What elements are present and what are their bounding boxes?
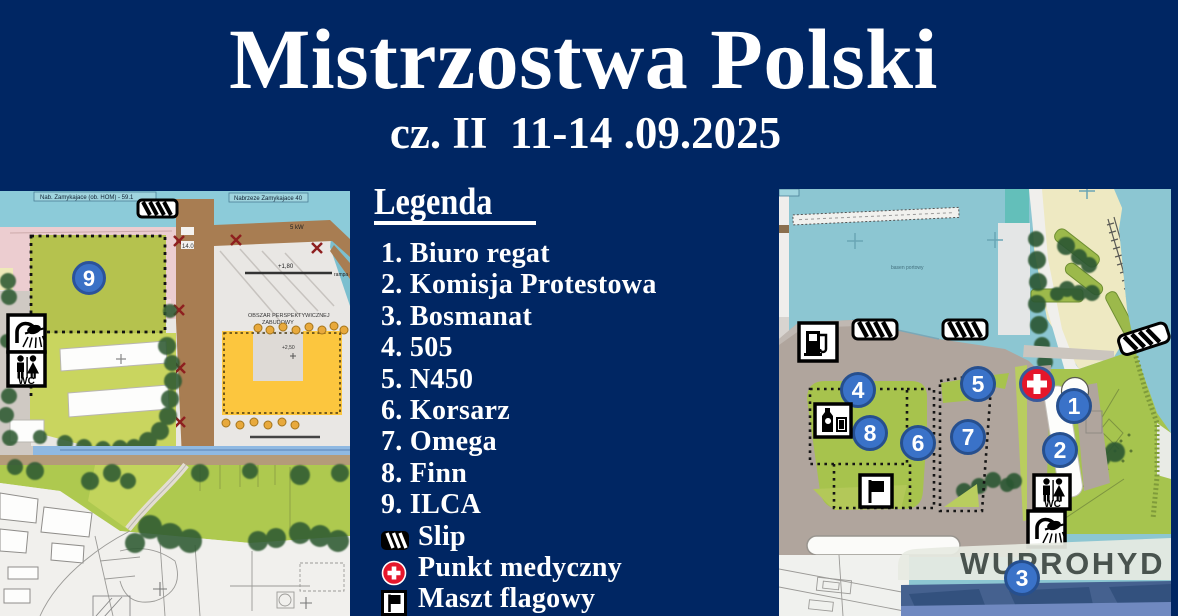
svg-text:+1,80: +1,80 xyxy=(278,264,294,270)
svg-text:Nab. Zamykajace (ob. HOM) - 59: Nab. Zamykajace (ob. HOM) - 59.1 xyxy=(40,195,134,201)
svg-text:7: 7 xyxy=(962,424,975,450)
svg-text:OBSZAR PERSPEKTYWICZNEJ: OBSZAR PERSPEKTYWICZNEJ xyxy=(248,313,330,319)
svg-text:basen portowy: basen portowy xyxy=(891,265,924,271)
svg-text:WC: WC xyxy=(18,376,35,387)
svg-text:2: 2 xyxy=(1054,437,1067,463)
svg-text:4: 4 xyxy=(852,377,865,403)
svg-text:9: 9 xyxy=(83,266,95,291)
svg-text:8: 8 xyxy=(864,420,877,446)
svg-text:Nabrzeze Zamykajace 40: Nabrzeze Zamykajace 40 xyxy=(234,196,303,202)
svg-text:rampa 8%: rampa 8% xyxy=(334,272,350,278)
svg-text:14.0: 14.0 xyxy=(182,244,194,250)
svg-text:+2,50: +2,50 xyxy=(282,345,295,351)
svg-text:ZABUDOWY: ZABUDOWY xyxy=(262,320,294,326)
svg-text:3: 3 xyxy=(1016,565,1029,591)
svg-text:5: 5 xyxy=(972,371,985,397)
svg-text:6: 6 xyxy=(912,430,925,456)
svg-text:WC: WC xyxy=(1044,499,1061,510)
svg-text:5 kW: 5 kW xyxy=(290,225,304,231)
svg-text:WUPROHYD: WUPROHYD xyxy=(960,546,1165,581)
svg-text:1: 1 xyxy=(1068,393,1081,419)
